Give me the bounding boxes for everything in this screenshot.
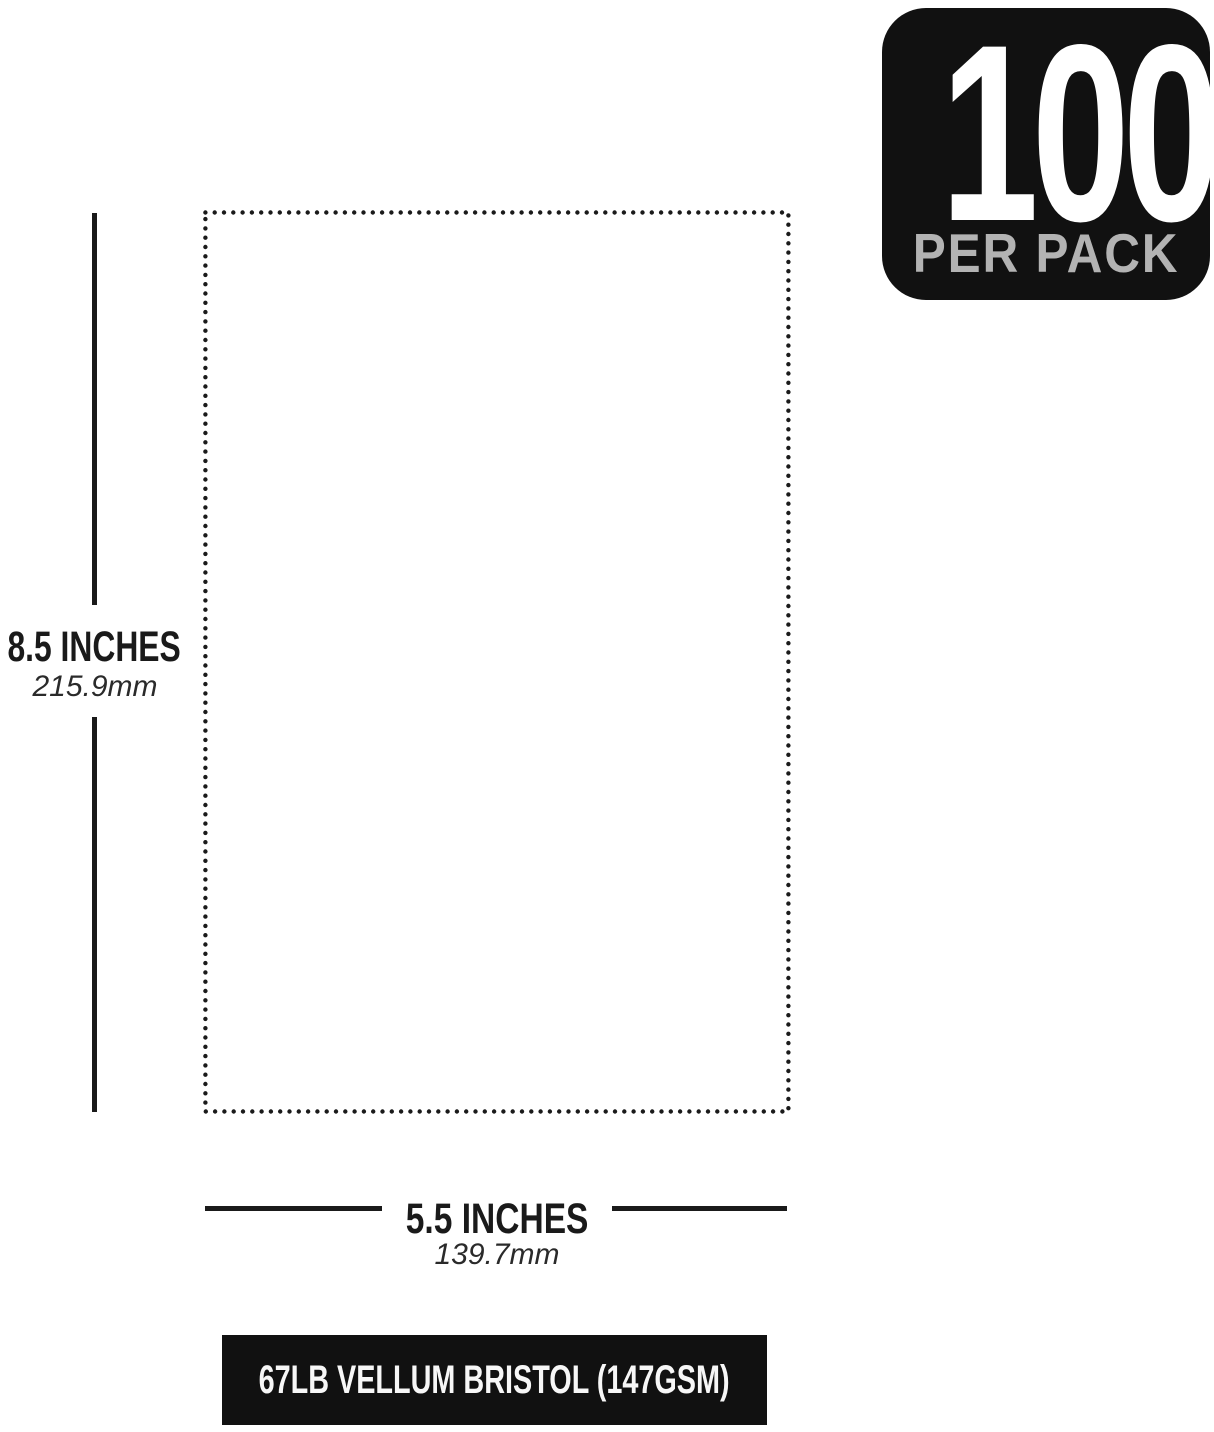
- height-inches-label: 8.5 INCHES: [0, 626, 244, 669]
- height-dimension-line-bottom: [92, 717, 97, 1112]
- paper-sheet-outline: [203, 208, 791, 1116]
- height-inches-text: 8.5 INCHES: [7, 626, 180, 669]
- per-pack-badge: 100 PER PACK: [882, 8, 1210, 300]
- product-dimension-diagram: 100 PER PACK 8.5 INCHES 215.9mm 5.5 INCH…: [0, 0, 1214, 1432]
- width-inches-label: 5.5 INCHES: [347, 1198, 647, 1241]
- pack-count-caption: PER PACK: [882, 226, 1210, 281]
- dotted-border: [205, 213, 788, 1112]
- pack-count-caption-text: PER PACK: [913, 226, 1180, 281]
- paper-spec-text: 67LB VELLUM BRISTOL (147GSM): [259, 1360, 730, 1400]
- width-mm-label: 139.7mm: [347, 1240, 647, 1270]
- height-mm-label: 215.9mm: [0, 672, 245, 702]
- width-inches-text: 5.5 INCHES: [406, 1198, 589, 1241]
- paper-spec-bar: 67LB VELLUM BRISTOL (147GSM): [222, 1335, 767, 1425]
- height-dimension-line-top: [92, 213, 97, 605]
